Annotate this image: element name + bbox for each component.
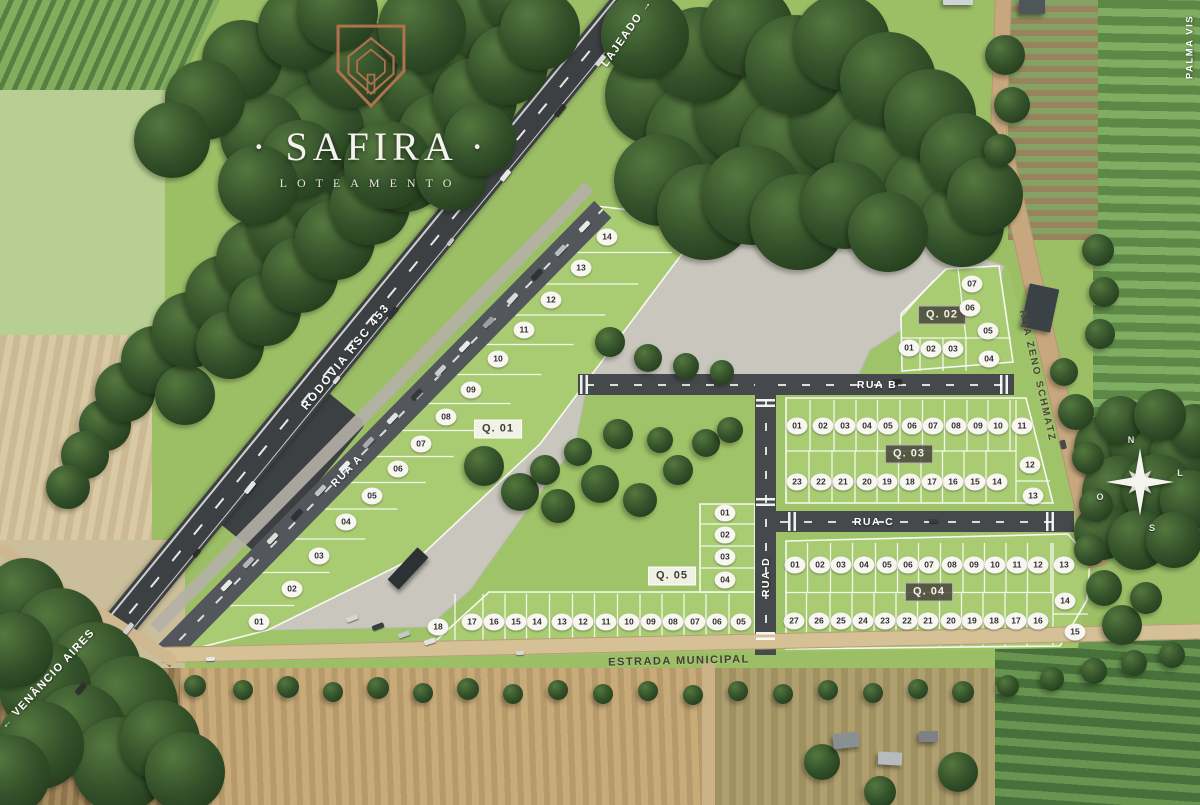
compass-east-label: L: [1177, 468, 1183, 478]
compass-west-label: O: [1096, 492, 1103, 502]
brand-subtitle: LOTEAMENTO: [248, 176, 493, 191]
compass-south-label: S: [1149, 523, 1155, 533]
direction-label-venancio-aires: ← VENÂNCIO AIRES: [0, 626, 98, 731]
compass-north-label: N: [1128, 435, 1135, 445]
edge-label-palma-vis: PALMA VIS: [1185, 15, 1196, 79]
direction-label-lajeado: LAJEADO →: [599, 0, 655, 69]
road-label-rua-b: RUA B: [857, 379, 897, 391]
road-label-rua-d: RUA D: [760, 557, 772, 597]
road-label-rua-a: RUA A: [329, 452, 365, 489]
shield-house-icon: [332, 22, 410, 110]
road-label-rodovia: RODOVIA RSC 453: [299, 302, 392, 413]
labels-layer: LAJEADO → ← VENÂNCIO AIRES RODOVIA RSC 4…: [0, 0, 1200, 805]
road-label-estrada-municipal: ESTRADA MUNICIPAL: [608, 653, 750, 668]
compass-star-icon: [1102, 444, 1178, 520]
site-plan: Q. 010102030405060708091011121314Q. 0201…: [0, 0, 1200, 805]
road-label-rua-c: RUA C: [854, 516, 894, 528]
brand-title: · SAFIRA ·: [248, 123, 493, 170]
brand-logo: · SAFIRA · LOTEAMENTO: [248, 22, 493, 191]
road-label-rua-zeno-schmatz: RUA ZENO SCHMATZ: [1016, 309, 1057, 443]
